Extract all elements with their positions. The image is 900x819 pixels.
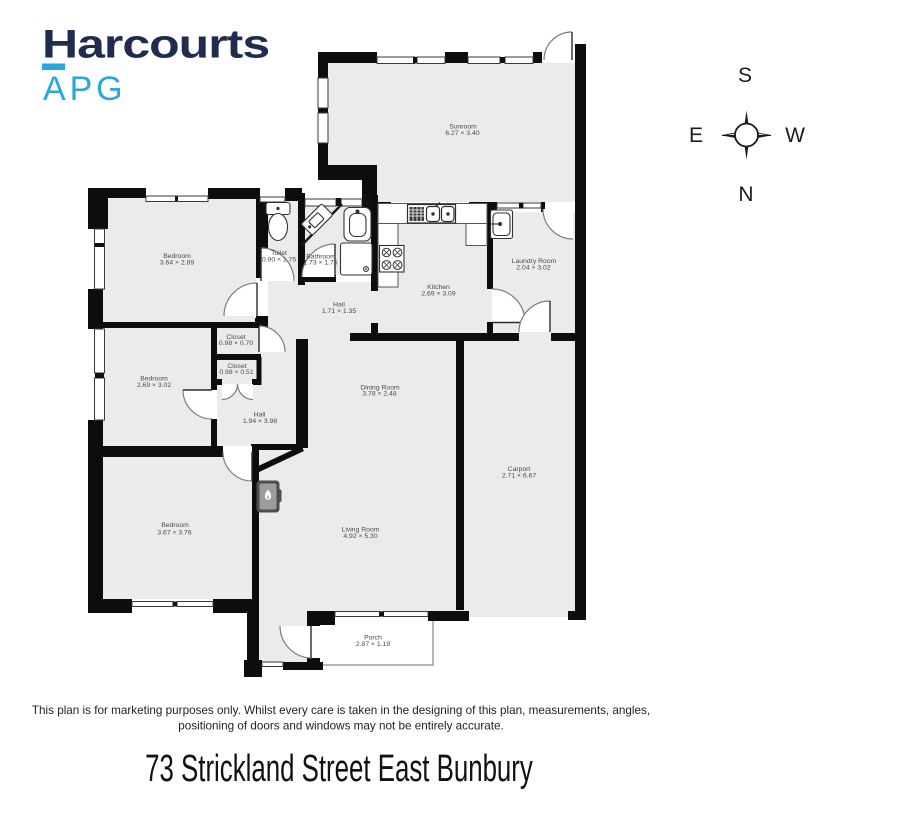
svg-text:2.04 × 3.02: 2.04 × 3.02 [516, 265, 550, 272]
svg-text:1.94 × 3.98: 1.94 × 3.98 [243, 418, 277, 425]
svg-text:0.98 × 0.51: 0.98 × 0.51 [219, 369, 253, 376]
svg-text:1.71 × 1.35: 1.71 × 1.35 [322, 308, 356, 315]
svg-text:73 Strickland Street East Bunb: 73 Strickland Street East Bunbury [145, 747, 533, 789]
svg-text:2.69 × 3.02: 2.69 × 3.02 [137, 382, 171, 389]
svg-text:0.98 × 0.70: 0.98 × 0.70 [219, 340, 253, 347]
svg-text:3.78 × 2.48: 3.78 × 2.48 [362, 391, 396, 398]
svg-text:3.64 × 2.89: 3.64 × 2.89 [160, 260, 194, 267]
svg-text:Harcourts: Harcourts [42, 21, 269, 66]
svg-text:APG: APG [43, 70, 127, 108]
svg-text:Bedroom: Bedroom [161, 522, 189, 529]
svg-text:2.71 × 6.67: 2.71 × 6.67 [502, 473, 536, 480]
svg-text:3.67 × 3.76: 3.67 × 3.76 [157, 530, 191, 537]
svg-text:S: S [738, 64, 752, 87]
svg-text:4.92 × 5.30: 4.92 × 5.30 [343, 533, 377, 540]
svg-text:1.73 × 1.75: 1.73 × 1.75 [303, 260, 337, 267]
svg-text:W: W [785, 124, 805, 147]
svg-text:E: E [689, 124, 703, 147]
svg-text:N: N [738, 183, 753, 206]
svg-text:6.27 × 3.40: 6.27 × 3.40 [445, 130, 479, 137]
svg-text:2.69 × 3.09: 2.69 × 3.09 [421, 291, 455, 298]
svg-text:positioning of doors and windo: positioning of doors and windows may not… [178, 720, 504, 733]
svg-text:2.87 × 1.19: 2.87 × 1.19 [356, 641, 390, 648]
svg-text:0.90 × 1.75: 0.90 × 1.75 [262, 257, 296, 264]
svg-text:This plan is for marketing pur: This plan is for marketing purposes only… [32, 704, 650, 717]
